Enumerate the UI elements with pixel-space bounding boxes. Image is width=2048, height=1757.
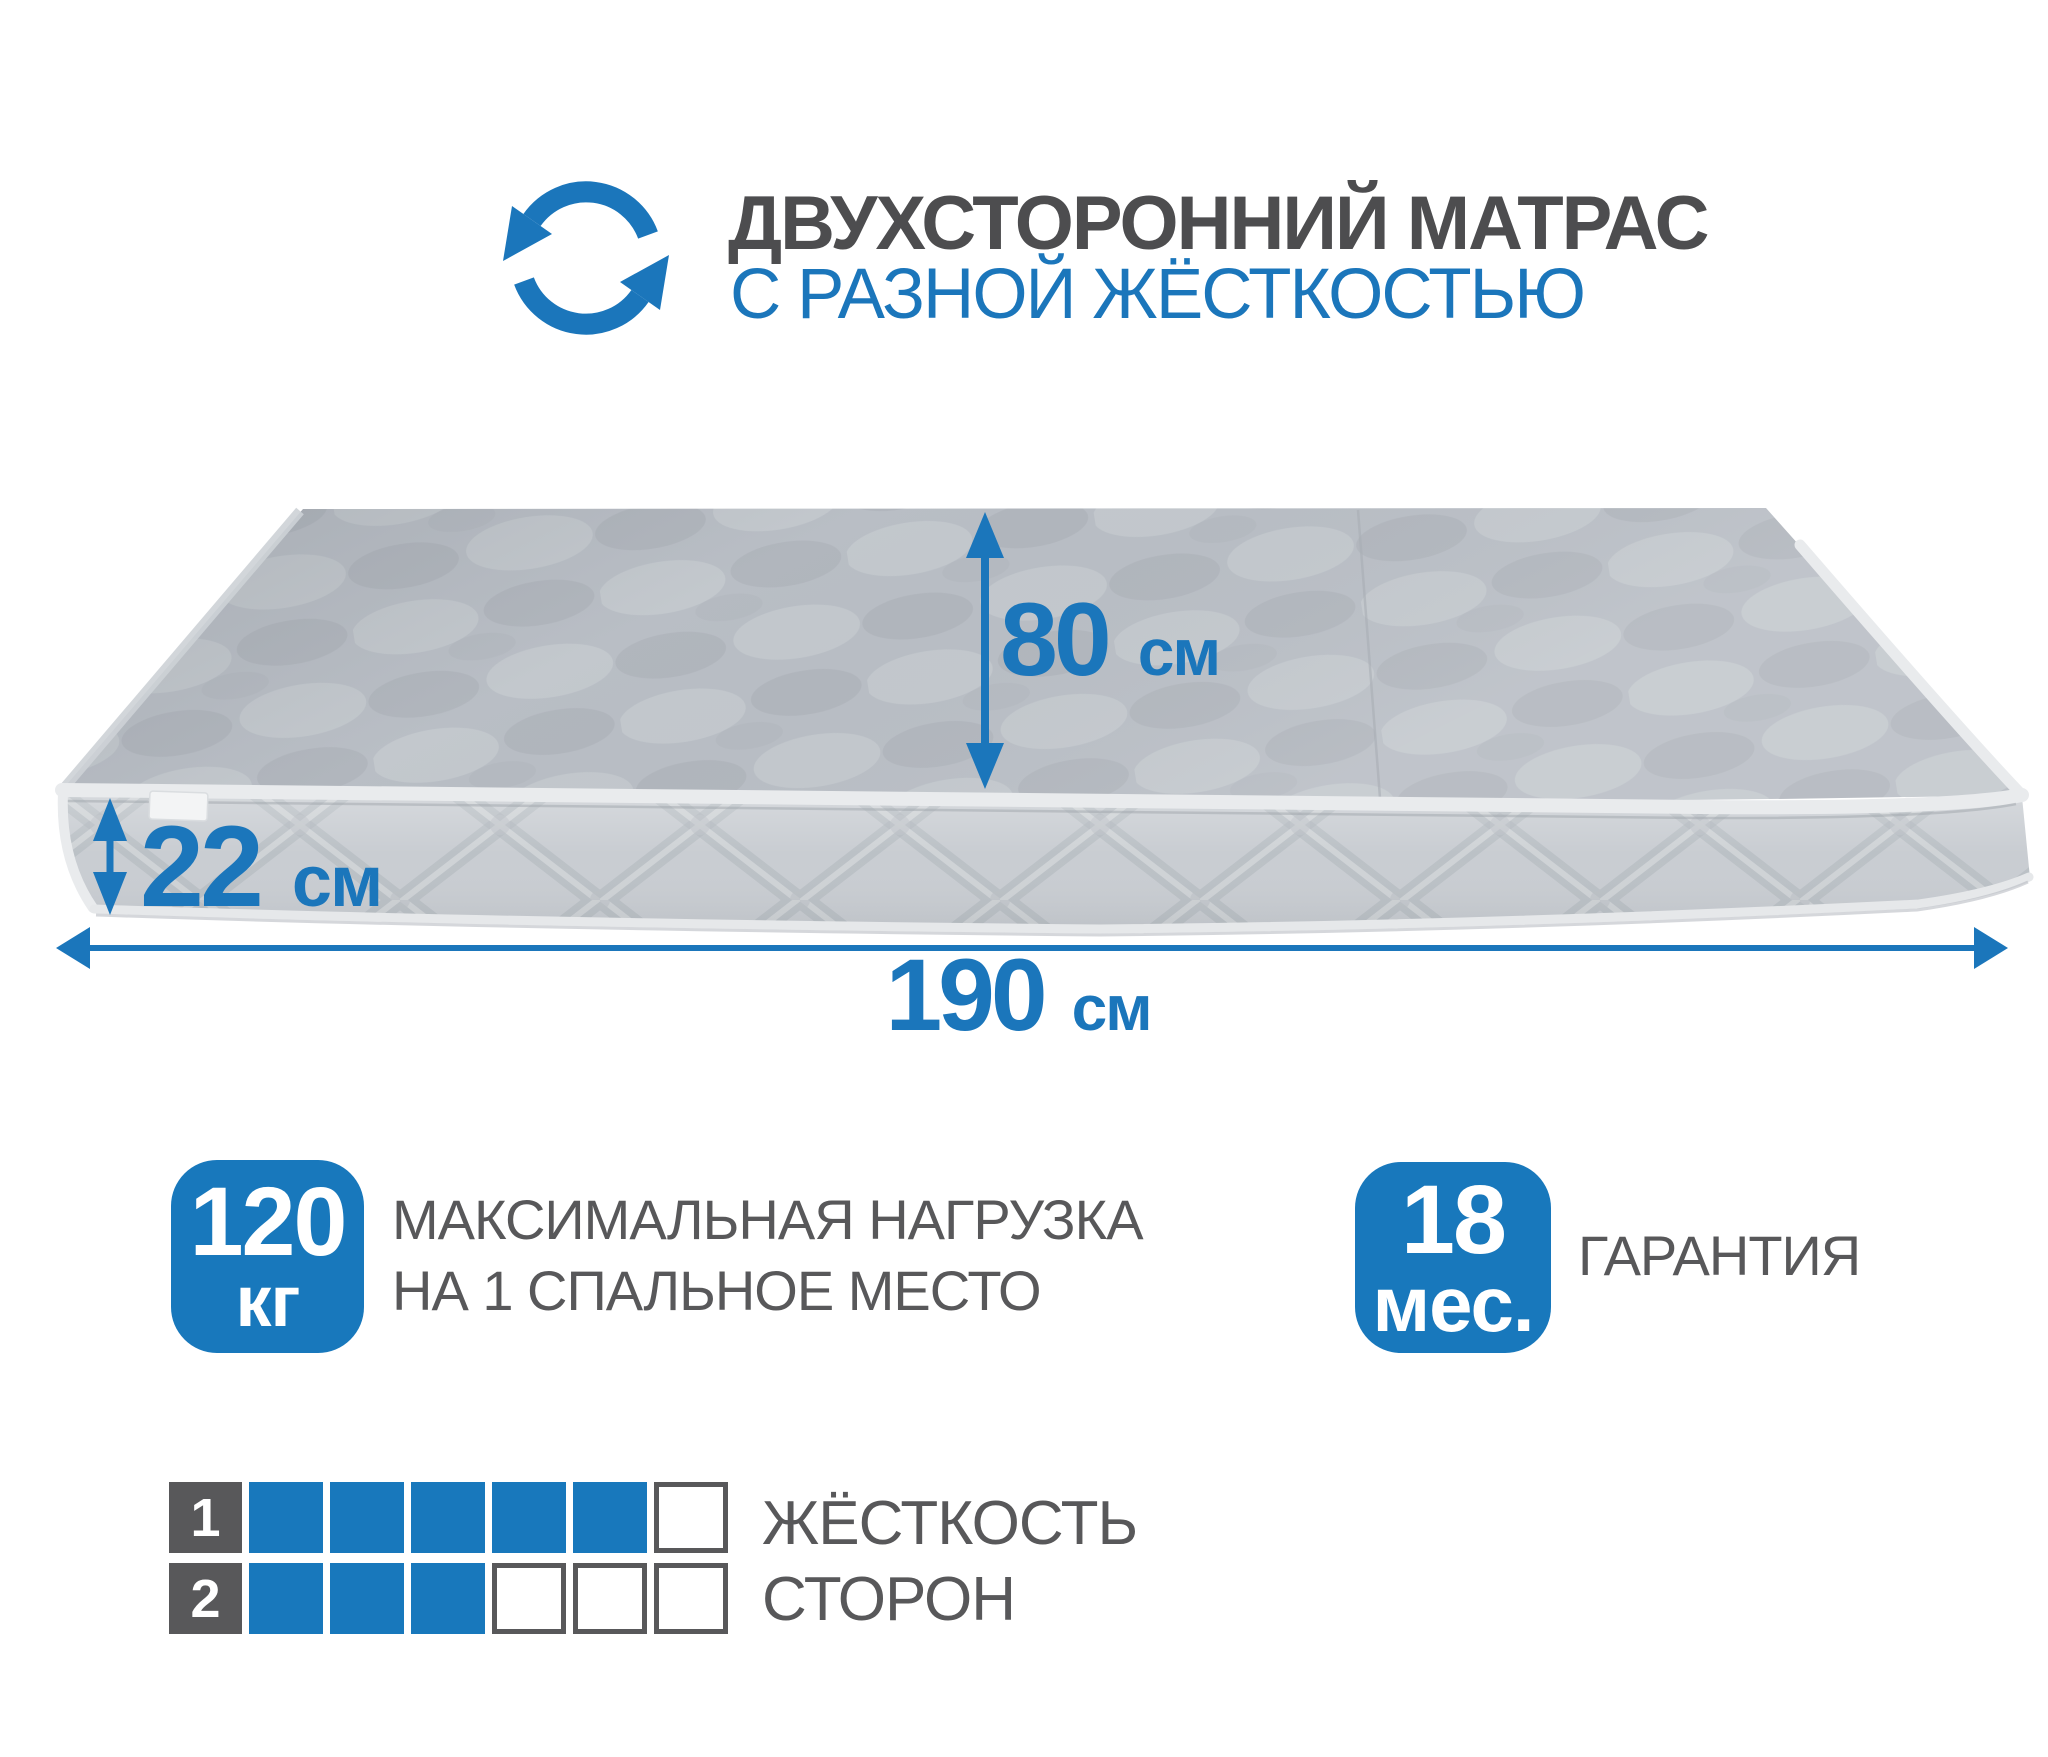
warranty-value: 18 [1401,1174,1505,1266]
dimension-width-label: 80 см [1000,588,1219,692]
firmness-scale: 12 [169,1482,728,1634]
firmness-cell-empty [654,1482,728,1553]
dimension-length-unit: см [1072,976,1151,1040]
max-load-badge: 120 кг [171,1160,364,1353]
firmness-cell-filled [411,1482,485,1553]
warranty-unit: мес. [1372,1267,1533,1341]
firmness-cell-filled [249,1563,323,1634]
dimension-width-unit: см [1138,619,1220,685]
firmness-cell-filled [573,1482,647,1553]
firmness-cell-empty [492,1563,566,1634]
firmness-cell-filled [330,1482,404,1553]
firmness-cell-empty [573,1563,647,1634]
firmness-caption-line-2: СТОРОН [762,1562,1137,1638]
firmness-cell-filled [249,1482,323,1553]
firmness-caption: ЖЁСТКОСТЬ СТОРОН [762,1486,1137,1638]
warranty-badge: 18 мес. [1355,1162,1551,1353]
warranty-label: ГАРАНТИЯ [1578,1220,1860,1291]
rotate-arrows-icon [503,192,669,324]
dimension-height-value: 22 [140,810,260,925]
max-load-label-line-2: НА 1 СПАЛЬНОЕ МЕСТО [392,1255,1143,1326]
firmness-cell-filled [492,1482,566,1553]
max-load-unit: кг [235,1268,299,1336]
max-load-label-line-1: МАКСИМАЛЬНАЯ НАГРУЗКА [392,1184,1143,1255]
firmness-row: 1 [169,1482,728,1553]
title-line-1: ДВУХСТОРОННИЙ МАТРАС [728,186,1708,262]
title-line-2: С РАЗНОЙ ЖЁСТКОСТЬЮ [730,259,1584,330]
firmness-cell-filled [411,1563,485,1634]
firmness-cell-empty [654,1563,728,1634]
max-load-label: МАКСИМАЛЬНАЯ НАГРУЗКА НА 1 СПАЛЬНОЕ МЕСТ… [392,1184,1143,1326]
firmness-cell-filled [330,1563,404,1634]
dimension-height-label: 22 см [140,810,381,925]
dimension-length-label: 190 см [718,944,1318,1046]
firmness-side-number: 1 [169,1482,242,1553]
dimension-length-value: 190 [885,944,1043,1046]
dimension-width-value: 80 [1000,588,1108,692]
dimension-height-unit: см [292,846,381,918]
firmness-row: 2 [169,1563,728,1634]
max-load-value: 120 [190,1176,346,1268]
firmness-caption-line-1: ЖЁСТКОСТЬ [762,1486,1137,1562]
firmness-side-number: 2 [169,1563,242,1634]
